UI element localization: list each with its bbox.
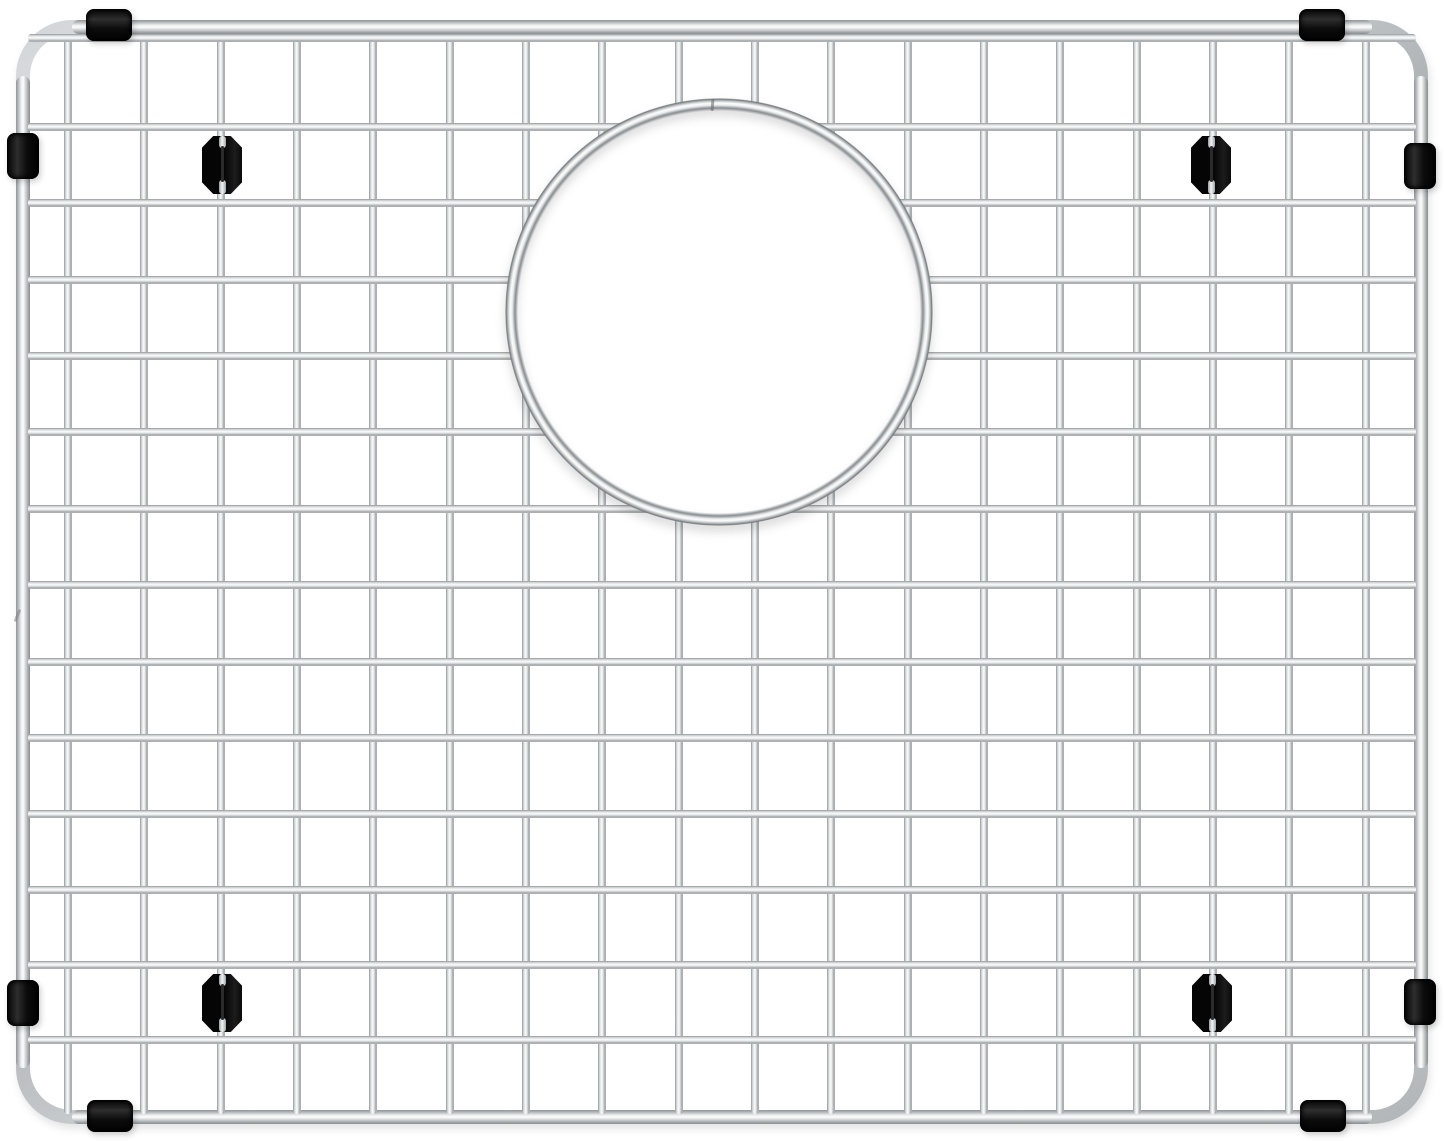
foot-wire-notch-bottom <box>1208 180 1215 194</box>
grid-wire-vertical <box>1056 36 1064 1114</box>
sleeve-left-upper <box>7 133 39 179</box>
sleeve-top-left <box>86 9 132 41</box>
grid-wire-vertical <box>1285 36 1293 1114</box>
grid-wire-horizontal <box>28 961 1416 969</box>
foot-wire-notch-bottom <box>219 180 226 194</box>
frame-tube-top <box>72 20 1372 34</box>
sleeve-left-lower <box>7 980 39 1026</box>
foot-wire-notch-bottom <box>1209 1018 1216 1032</box>
grid-wire-vertical <box>217 36 225 1114</box>
foot-bottom-right <box>1192 974 1232 1032</box>
grid-wire-horizontal <box>28 428 550 436</box>
grid-wire-vertical <box>446 36 454 1114</box>
grid-wire-horizontal <box>28 581 1416 589</box>
grid-wire-horizontal <box>28 276 514 284</box>
grid-wire-horizontal <box>28 886 1416 894</box>
grid-wire-horizontal <box>28 1036 1416 1044</box>
frame-tube-right <box>1414 76 1428 1068</box>
grid-wire-horizontal <box>28 34 1416 42</box>
foot-wire-notch-bottom <box>219 1018 226 1032</box>
grid-wire-vertical <box>598 483 606 1114</box>
grid-wire-vertical <box>64 36 72 1114</box>
grid-wire-horizontal <box>888 428 1416 436</box>
grid-wire-horizontal <box>783 505 1416 513</box>
grid-wire-horizontal <box>28 123 626 131</box>
grid-wire-horizontal <box>28 658 1416 666</box>
grid-wire-horizontal <box>924 276 1416 284</box>
grid-wire-vertical <box>140 36 148 1114</box>
grid-wire-vertical <box>369 36 377 1114</box>
foot-top-right <box>1191 136 1231 194</box>
frame-tube-left <box>16 76 30 1068</box>
grid-wire-horizontal <box>28 505 655 513</box>
sleeve-right-lower <box>1404 979 1436 1025</box>
frame-tube-bottom <box>72 1110 1372 1124</box>
grid-wire-vertical <box>1362 36 1370 1114</box>
product-photo-sink-grid <box>0 0 1444 1141</box>
foot-bottom-left <box>202 974 242 1032</box>
grid-wire-horizontal <box>812 123 1416 131</box>
sleeve-top-right <box>1299 9 1345 41</box>
foot-groove <box>1211 984 1214 1020</box>
grid-wire-horizontal <box>28 352 517 360</box>
sleeve-right-upper <box>1404 143 1436 189</box>
foot-top-left <box>202 136 242 194</box>
grid-wire-vertical <box>675 36 683 109</box>
grid-wire-vertical <box>1209 36 1217 1114</box>
grid-wire-vertical <box>980 36 988 1114</box>
grid-wire-horizontal <box>28 199 543 207</box>
drain-opening-ring <box>505 98 933 526</box>
sleeve-bottom-right <box>1300 1100 1346 1132</box>
foot-groove <box>221 984 224 1020</box>
grid-wire-horizontal <box>28 734 1416 742</box>
grid-wire-vertical <box>293 36 301 1114</box>
grid-wire-horizontal <box>895 199 1416 207</box>
foot-groove <box>221 146 224 182</box>
grid-wire-vertical <box>522 387 530 1114</box>
grid-wire-horizontal <box>28 810 1416 818</box>
grid-wire-horizontal <box>921 352 1416 360</box>
grid-wire-vertical <box>1133 36 1141 1114</box>
grid-wire-vertical <box>751 36 759 108</box>
foot-groove <box>1210 146 1213 182</box>
sleeve-bottom-left <box>87 1100 133 1132</box>
